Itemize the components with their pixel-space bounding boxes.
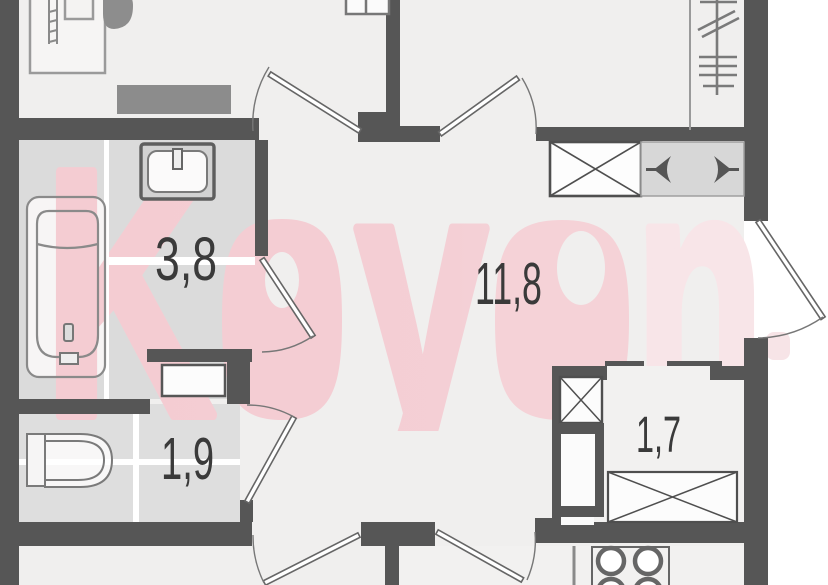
svg-text:1,9: 1,9 xyxy=(161,427,214,493)
svg-text:11,8: 11,8 xyxy=(475,252,542,318)
svg-text:1,7: 1,7 xyxy=(636,406,681,464)
svg-text:3,8: 3,8 xyxy=(155,226,217,294)
